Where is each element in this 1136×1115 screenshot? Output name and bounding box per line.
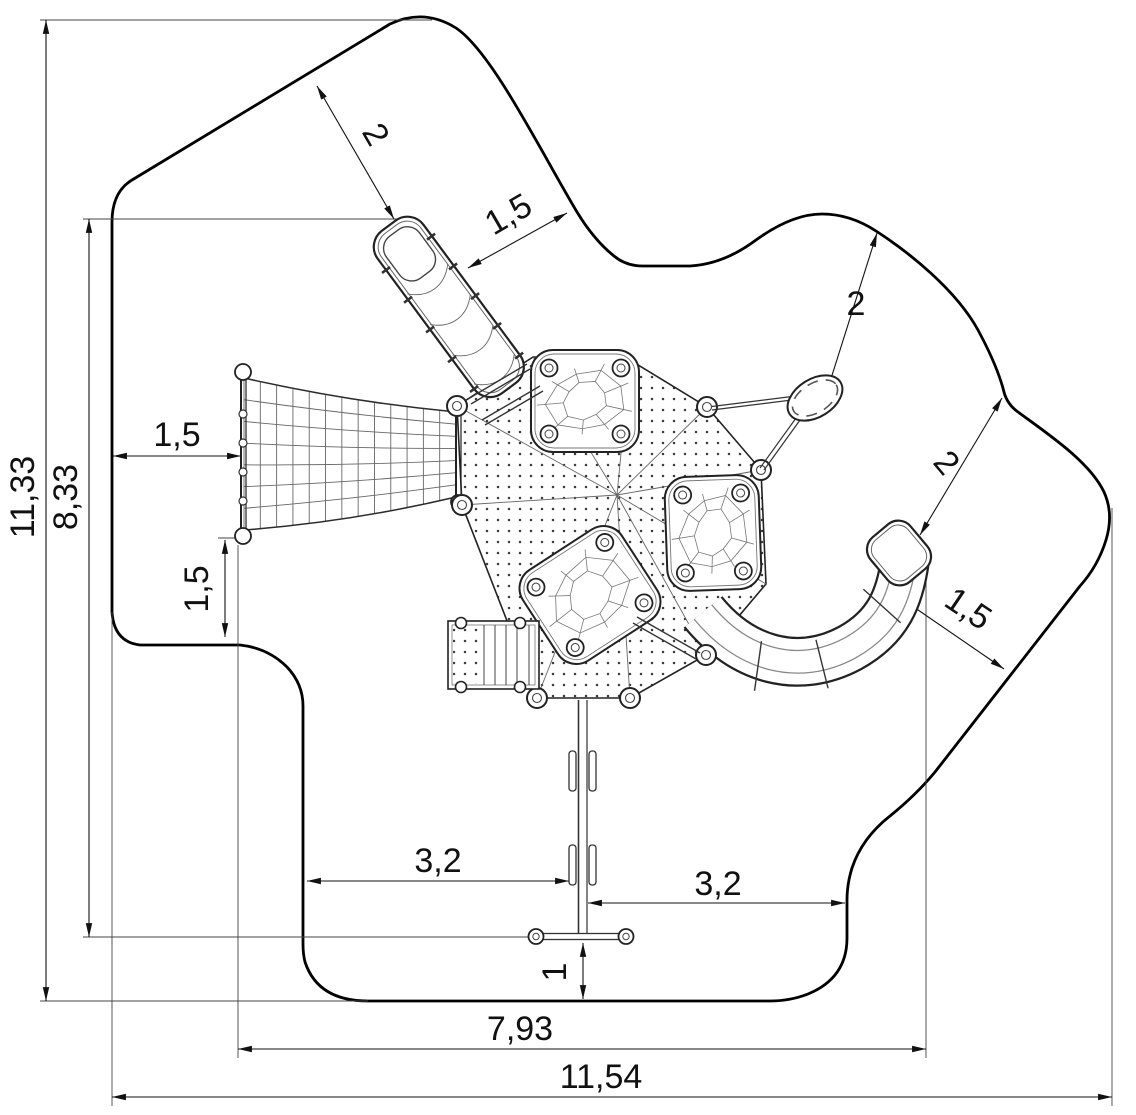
dim-label-net-bottom-clearance: 1,5 bbox=[178, 565, 216, 612]
spinner-disc bbox=[779, 366, 850, 430]
dim-label-equipment-height: 8,33 bbox=[47, 464, 85, 530]
dim-label-spinner-clearance: 2 bbox=[847, 285, 866, 323]
dim-label-curved-slide-top-clearance: 2 bbox=[926, 443, 967, 482]
swing bbox=[529, 700, 634, 944]
dim-line-slide-top bbox=[317, 86, 394, 219]
swing-crossbar bbox=[536, 934, 626, 940]
dim-label-swing-offset-right: 3,2 bbox=[694, 865, 741, 903]
dim-label-equipment-width: 7,93 bbox=[487, 1010, 553, 1048]
plan-svg: 11,33 8,33 2 1,5 2 2 1,5 1,5 1,5 3,2 3,2… bbox=[0, 0, 1136, 1115]
access-stairs bbox=[448, 618, 539, 693]
dim-label-total-height: 11,33 bbox=[4, 456, 42, 539]
dim-label-total-width: 11,54 bbox=[560, 1058, 643, 1096]
straight-slide bbox=[362, 206, 535, 408]
climb-net-top bbox=[531, 350, 639, 452]
play-structure bbox=[235, 206, 938, 944]
dim-label-slide-top-clearance: 2 bbox=[354, 117, 396, 152]
climb-net-right bbox=[664, 474, 762, 591]
swing-clamps bbox=[569, 751, 596, 885]
dim-label-swing-offset-left: 3,2 bbox=[414, 842, 461, 880]
dim-label-curved-slide-side-clearance: 1,5 bbox=[938, 580, 998, 638]
dim-label-swing-bottom-clearance: 1 bbox=[536, 963, 574, 982]
cone-net bbox=[235, 364, 465, 544]
playground-plan-drawing: 11,33 8,33 2 1,5 2 2 1,5 1,5 1,5 3,2 3,2… bbox=[0, 0, 1136, 1115]
dim-label-net-left-clearance: 1,5 bbox=[153, 416, 200, 454]
